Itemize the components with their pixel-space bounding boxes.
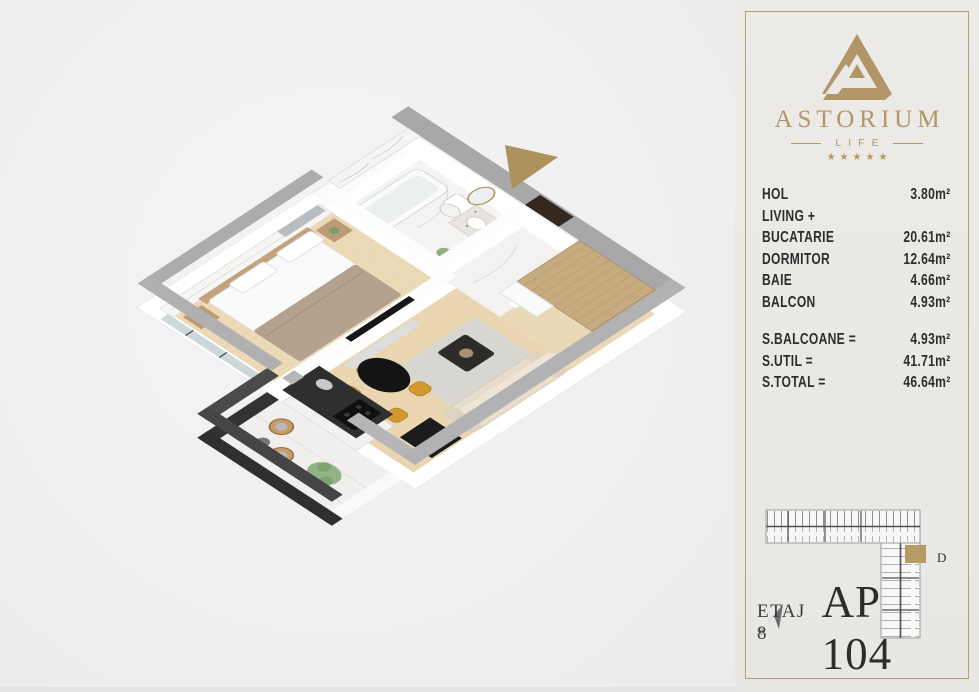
room-label: BUCATARIE: [762, 229, 834, 247]
total-row: S.UTIL = 41.71m²: [762, 353, 951, 375]
room-label: LIVING +: [762, 208, 815, 226]
brand-name: ASTORIUM: [740, 106, 979, 134]
room-row: BUCATARIE 20.61m²: [762, 229, 951, 251]
room-row: LIVING +: [762, 208, 951, 230]
keymap-unit-label: D: [937, 550, 946, 565]
info-panel: ASTORIUM LIFE ★★★★★ HOL 3.80m² LIVING + …: [735, 0, 979, 692]
total-label: S.TOTAL =: [762, 374, 826, 392]
room-row: BALCON 4.93m²: [762, 294, 951, 316]
floor-label: ETAJ 8: [757, 601, 822, 645]
room-row: HOL 3.80m²: [762, 186, 951, 208]
floorplan-area: [0, 0, 735, 692]
apartment-label: AP 104: [822, 576, 959, 680]
brand-subtitle: LIFE: [835, 137, 885, 149]
panel-footer: ETAJ 8 AP 104: [757, 576, 959, 680]
total-row: S.TOTAL = 46.64m²: [762, 374, 951, 396]
total-label: S.BALCOANE =: [762, 331, 856, 349]
room-value: 20.61m²: [904, 229, 951, 247]
total-value: 41.71m²: [904, 353, 951, 371]
brand-logo: ASTORIUM LIFE ★★★★★: [735, 34, 979, 163]
totals-list: S.BALCOANE = 4.93m² S.UTIL = 41.71m² S.T…: [762, 331, 951, 396]
brand-subtitle-row: LIFE: [735, 137, 979, 149]
page-bottom-strip: [0, 687, 735, 692]
floorplan-render: [0, 0, 735, 692]
entrance-arrow: [505, 145, 558, 189]
room-label: HOL: [762, 186, 788, 204]
rule-left: [791, 143, 821, 144]
total-label: S.UTIL =: [762, 353, 813, 371]
brand-triangle-icon: [821, 34, 893, 100]
room-row: DORMITOR 12.64m²: [762, 251, 951, 273]
total-value: 46.64m²: [904, 374, 951, 392]
room-label: BAIE: [762, 272, 792, 290]
room-value: 4.93m²: [911, 294, 951, 312]
room-row: BAIE 4.66m²: [762, 272, 951, 294]
room-areas-list: HOL 3.80m² LIVING + BUCATARIE 20.61m² DO…: [762, 186, 951, 315]
room-value: 3.80m²: [911, 186, 951, 204]
room-label: DORMITOR: [762, 251, 830, 269]
room-value: 4.66m²: [911, 272, 951, 290]
brand-stars: ★★★★★: [739, 152, 979, 163]
keymap-unit-highlight: [905, 545, 926, 563]
rule-right: [893, 143, 923, 144]
total-row: S.BALCOANE = 4.93m²: [762, 331, 951, 353]
room-label: BALCON: [762, 294, 816, 312]
room-value: 12.64m²: [904, 251, 951, 269]
brochure-page: ASTORIUM LIFE ★★★★★ HOL 3.80m² LIVING + …: [0, 0, 979, 692]
total-value: 4.93m²: [911, 331, 951, 349]
